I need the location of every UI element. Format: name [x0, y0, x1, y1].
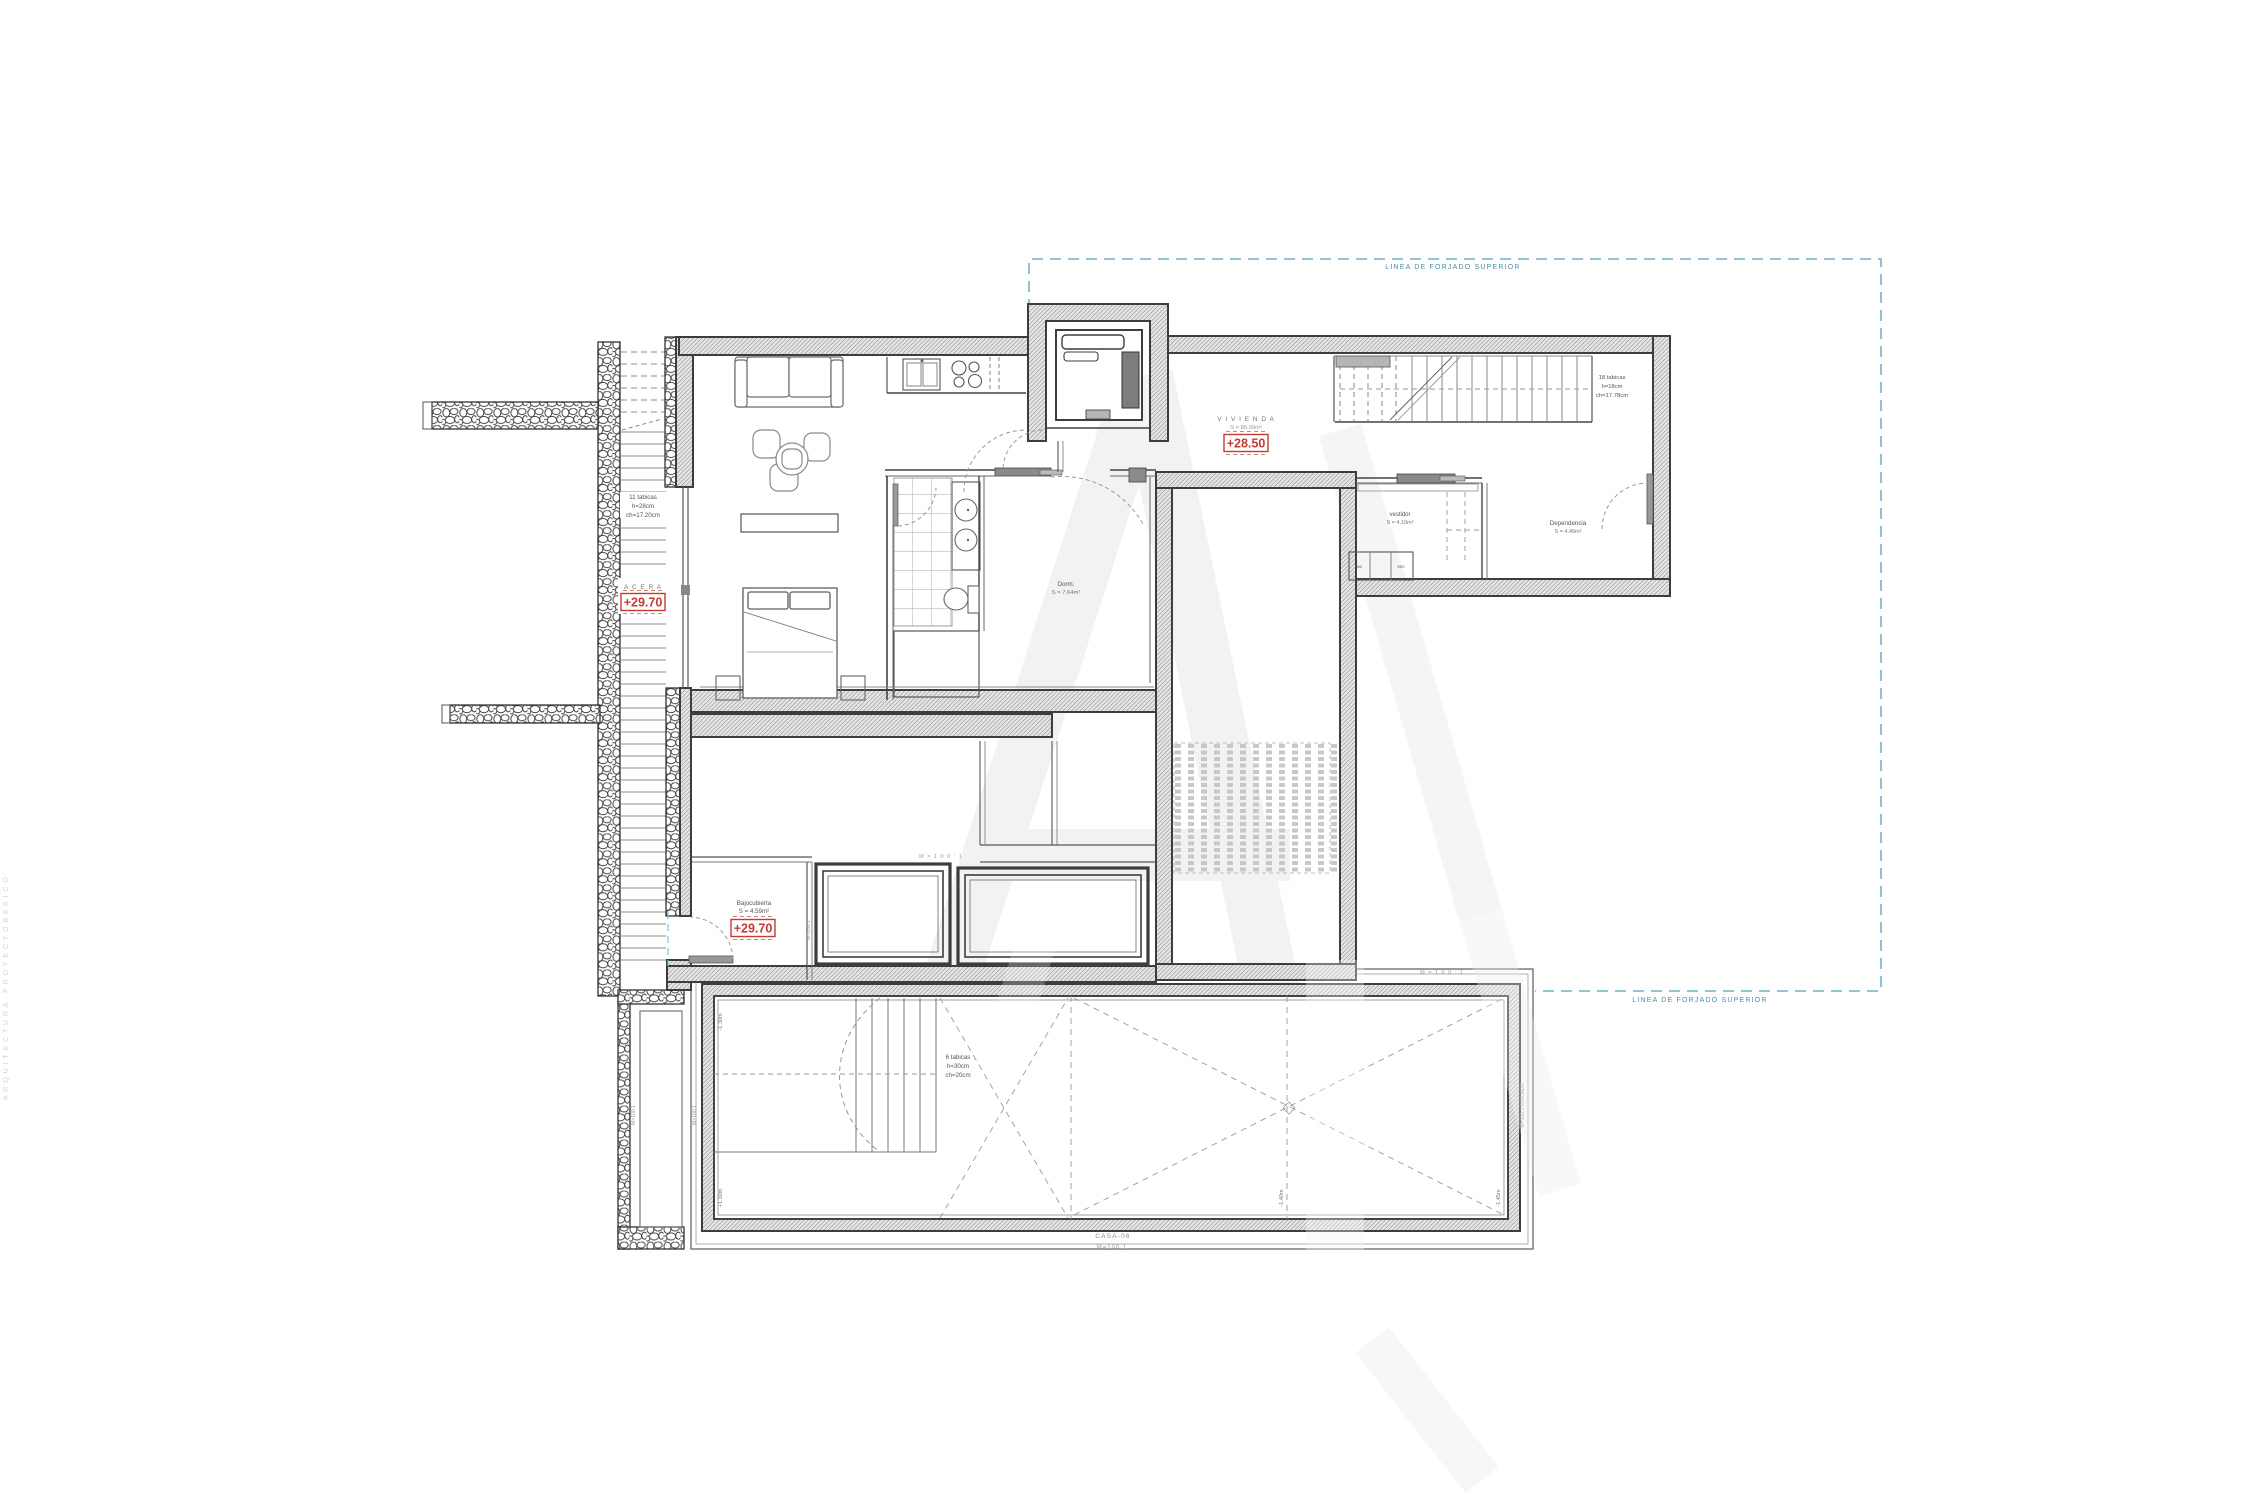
svg-text:lav: lav	[1356, 564, 1363, 570]
svg-text:-1.40m: -1.40m	[1279, 1189, 1285, 1207]
svg-text:LINEA DE FORJADO SUPERIOR: LINEA DE FORJADO SUPERIOR	[1385, 264, 1520, 271]
svg-text:ch=17.20cm: ch=17.20cm	[626, 512, 660, 519]
svg-text:Bajocubierta: Bajocubierta	[737, 900, 772, 907]
svg-text:h=18cm: h=18cm	[1601, 384, 1622, 390]
svg-text:18 tabicas: 18 tabicas	[1599, 375, 1626, 381]
svg-text:Dorm.: Dorm.	[1058, 581, 1075, 588]
svg-text:-1.45m: -1.45m	[1496, 1189, 1502, 1207]
svg-text:M = 1 0 0 : 1: M = 1 0 0 : 1	[1420, 970, 1464, 976]
svg-text:vestidor: vestidor	[1389, 512, 1410, 518]
svg-text:11 tabicas: 11 tabicas	[629, 494, 657, 501]
svg-text:ch=20cm: ch=20cm	[945, 1072, 970, 1079]
svg-text:+1.30m: +1.30m	[718, 1188, 724, 1207]
svg-text:6 tabicas: 6 tabicas	[946, 1054, 971, 1061]
svg-text:h=28cm: h=28cm	[632, 503, 654, 510]
svg-text:ch=17.78cm: ch=17.78cm	[1596, 393, 1628, 399]
svg-text:Dependencia: Dependencia	[1550, 520, 1587, 527]
svg-text:+29.70: +29.70	[624, 596, 663, 610]
svg-text:A C E R A: A C E R A	[624, 584, 662, 591]
svg-text:S = 86.99m²: S = 86.99m²	[1230, 425, 1262, 431]
svg-text:M = 1 0 0 : 1: M = 1 0 0 : 1	[919, 854, 963, 860]
svg-text:A R Q U I T E C T U R A ·: A R Q U I T E C T U R A · P R O Y E C T …	[3, 876, 10, 1100]
svg-text:+28.50: +28.50	[1227, 437, 1266, 451]
svg-text:LINEA DE FORJADO SUPERIOR: LINEA DE FORJADO SUPERIOR	[1632, 997, 1767, 1004]
svg-text:V I V I E N D A: V I V I E N D A	[1217, 416, 1275, 423]
svg-text:h=30cm: h=30cm	[947, 1063, 969, 1070]
svg-text:S = 4.59m²: S = 4.59m²	[739, 908, 769, 915]
svg-text:S = 4.49m²: S = 4.49m²	[1554, 529, 1581, 535]
svg-text:S = 4.10m²: S = 4.10m²	[1386, 520, 1413, 526]
svg-text:M=100:1: M=100:1	[631, 1105, 637, 1125]
svg-text:CASA-06: CASA-06	[1095, 1233, 1131, 1240]
svg-text:M=100:1: M=100:1	[806, 920, 812, 940]
svg-text:S = 7.64m²: S = 7.64m²	[1052, 590, 1081, 596]
svg-text:M=100:1: M=100:1	[1097, 1245, 1128, 1251]
svg-text:+29.70: +29.70	[734, 922, 773, 936]
svg-text:-1.30m: -1.30m	[718, 1013, 724, 1031]
svg-text:sec: sec	[1397, 565, 1405, 570]
svg-text:M=100:1: M=100:1	[692, 1105, 698, 1125]
